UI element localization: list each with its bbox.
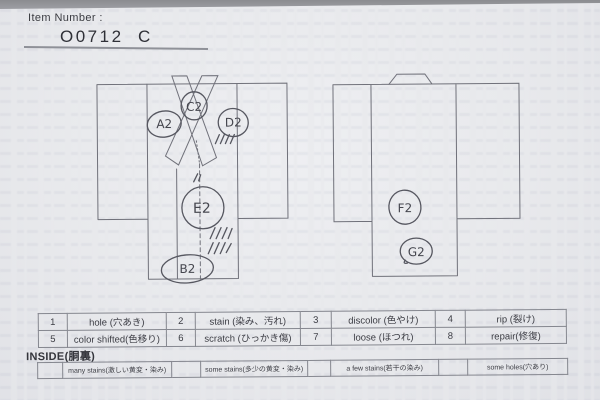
inside-checkbox-cell-2 bbox=[172, 361, 201, 377]
hatch-marks-lower-2 bbox=[208, 243, 231, 254]
hatch-marks-lower-1 bbox=[210, 228, 232, 239]
inside-checkbox-cell-4 bbox=[439, 359, 468, 375]
defect-label-8: repair(修復) bbox=[465, 326, 566, 344]
inside-checkbox-cell-3 bbox=[308, 360, 331, 376]
marker-b2-label: B2 bbox=[179, 262, 195, 276]
inside-option-2: some stains(多少の黄変・染み) bbox=[201, 360, 308, 377]
marker-g2: G2 bbox=[400, 238, 432, 264]
inside-option-4: some holes(穴あり) bbox=[468, 358, 568, 375]
kimono-back-diagram: F2 G2 bbox=[324, 66, 531, 283]
defect-label-6: scratch (ひっかき傷) bbox=[195, 329, 300, 347]
defect-code-7: 7 bbox=[300, 328, 331, 345]
marker-c2-label: C2 bbox=[186, 100, 202, 114]
defect-code-5: 5 bbox=[38, 330, 67, 347]
marker-a2-label: A2 bbox=[156, 117, 172, 131]
marker-f2-label: F2 bbox=[398, 201, 413, 215]
defect-code-1: 1 bbox=[38, 313, 67, 330]
defect-label-2: stain (染み、汚れ) bbox=[195, 312, 300, 330]
inside-lining-table: many stains(激しい黄変・染み) some stains(多少の黄変・… bbox=[37, 358, 568, 379]
marker-e2: E2 bbox=[182, 187, 224, 229]
inside-option-1: many stains(激しい黄変・染み) bbox=[63, 362, 172, 379]
marker-a2: A2 bbox=[145, 109, 183, 140]
defect-code-3: 3 bbox=[300, 311, 331, 328]
marker-f2: F2 bbox=[387, 188, 423, 225]
kimono-back-outline bbox=[333, 73, 521, 276]
marker-d2: D2 bbox=[217, 107, 250, 139]
defect-code-table: 1 hole (穴あき) 2 stain (染み、汚れ) 3 discolor … bbox=[38, 309, 567, 348]
marker-e2-label: E2 bbox=[193, 201, 211, 217]
collar-bands bbox=[165, 76, 219, 166]
defect-label-5: color shifted(色移り) bbox=[67, 330, 166, 348]
inside-options-row: many stains(激しい黄変・染み) some stains(多少の黄変・… bbox=[38, 358, 568, 378]
marker-g2-label: G2 bbox=[408, 245, 425, 259]
defect-code-2: 2 bbox=[166, 312, 195, 329]
defect-row-2: 5 color shifted(色移り) 6 scratch (ひっかき傷) 7… bbox=[38, 326, 566, 347]
sheet-content: A2 C2 D2 E2 B2 bbox=[0, 0, 600, 400]
back-collar bbox=[389, 74, 432, 84]
defect-code-4: 4 bbox=[435, 310, 465, 327]
marker-b2: B2 bbox=[160, 253, 214, 285]
marker-d2-label: D2 bbox=[225, 115, 242, 129]
defect-label-7: loose (ほつれ) bbox=[331, 327, 435, 345]
defect-code-8: 8 bbox=[435, 327, 465, 344]
inside-checkbox-cell-1 bbox=[38, 362, 63, 378]
defect-label-1: hole (穴あき) bbox=[67, 313, 166, 331]
inside-option-3: a few stains(若干の染み) bbox=[331, 359, 439, 376]
photographed-inspection-sheet: Item Number : O0712 C bbox=[0, 0, 600, 400]
defect-label-4: rip (裂け) bbox=[465, 309, 566, 327]
defect-label-3: discolor (色やけ) bbox=[331, 310, 435, 328]
kimono-front-diagram: A2 C2 D2 E2 B2 bbox=[89, 68, 301, 295]
defect-code-6: 6 bbox=[166, 329, 195, 346]
